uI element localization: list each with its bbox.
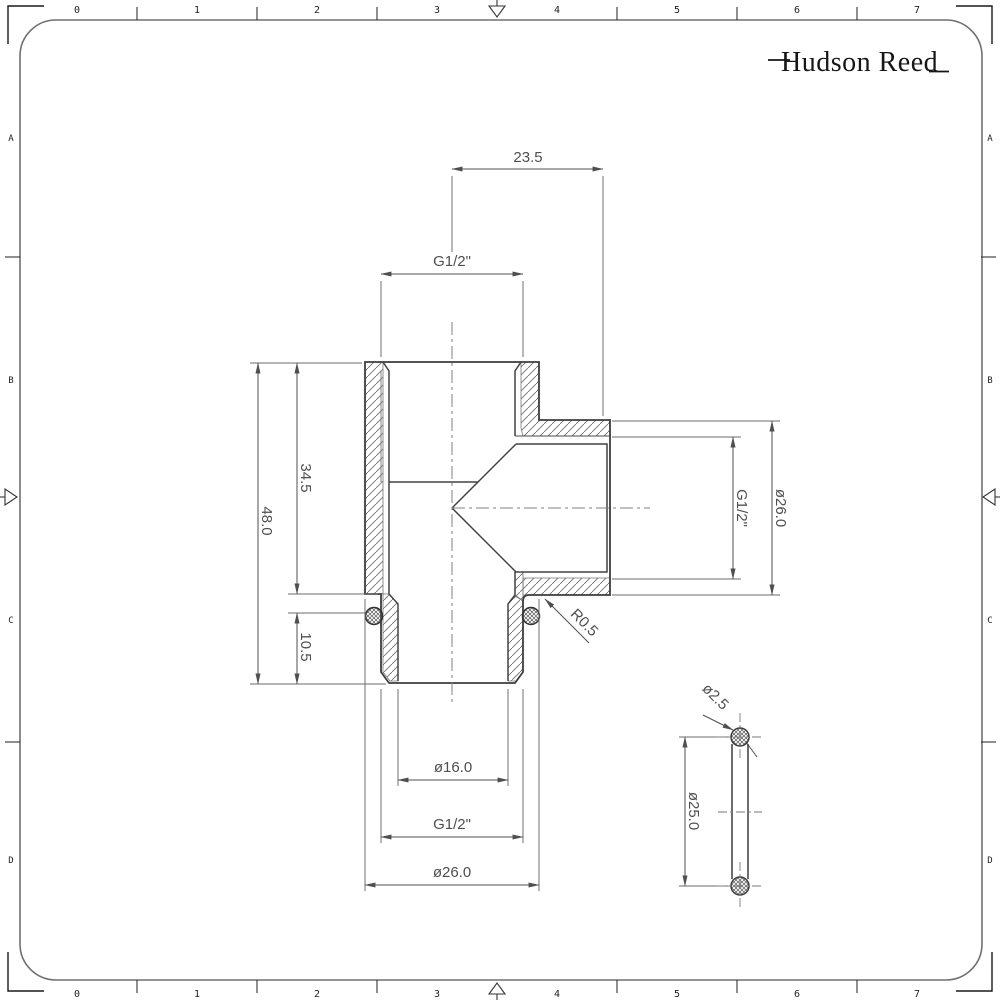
border-rounded-rect xyxy=(20,20,982,980)
center-marker-bottom-icon xyxy=(489,983,505,1000)
drawing-sheet: 0 1 2 3 4 5 6 7 0 1 2 3 4 5 6 7 xyxy=(0,0,1000,1000)
section-hatch-areas xyxy=(365,362,610,681)
row-letter: A xyxy=(8,134,14,144)
dim-branch-offset: 23.5 xyxy=(513,149,542,166)
row-letter: C xyxy=(8,616,13,626)
hatch-spigot-left-wall xyxy=(383,594,398,681)
hatch-right-upper-wall xyxy=(521,362,610,436)
extension-lines xyxy=(250,176,780,891)
dim-bore-diameter: ø16.0 xyxy=(434,759,472,776)
centerlines xyxy=(452,322,650,706)
dim-oring-cross-section: ø2.5 xyxy=(699,680,732,713)
ruler-number: 5 xyxy=(674,989,680,1000)
sheet-border xyxy=(8,6,992,991)
ruler-number: 4 xyxy=(554,989,560,1000)
dimension-lines xyxy=(258,169,772,886)
hatch-left-wall xyxy=(365,362,383,594)
dim-oring-offset: 10.5 xyxy=(297,632,314,661)
ruler-number: 3 xyxy=(434,5,440,16)
ruler-number: 1 xyxy=(194,5,200,16)
dim-thread-branch: G1/2" xyxy=(733,489,750,527)
ruler-number: 4 xyxy=(554,5,560,16)
hatch-spigot-right-wall xyxy=(508,596,523,681)
ruler-number: 0 xyxy=(74,5,80,16)
oring-left xyxy=(366,608,383,625)
ruler-number: 7 xyxy=(914,989,920,1000)
tee-fitting-section xyxy=(365,322,650,706)
ruler-number: 3 xyxy=(434,989,440,1000)
row-letter: B xyxy=(8,376,13,386)
dim-thread-bottom: G1/2" xyxy=(433,816,471,833)
dim-socket-depth: 34.5 xyxy=(297,463,314,492)
oring-detail-view xyxy=(716,713,764,910)
dim-body-height: 48.0 xyxy=(258,506,275,535)
cad-canvas: 0 1 2 3 4 5 6 7 0 1 2 3 4 5 6 7 xyxy=(0,0,1000,1000)
ruler-number: 1 xyxy=(194,989,200,1000)
oring-right xyxy=(523,608,540,625)
oring-cs-leader-line xyxy=(703,715,733,730)
row-letter: D xyxy=(987,856,992,866)
hatch-branch-bottom-wall xyxy=(523,578,610,595)
dim-fillet-radius: R0.5 xyxy=(567,606,601,640)
ruler-right: A B C D xyxy=(981,134,1000,866)
ruler-number: 7 xyxy=(914,5,920,16)
dim-body-od: ø26.0 xyxy=(433,864,471,881)
dim-thread-top: G1/2" xyxy=(433,253,471,270)
center-marker-right-icon xyxy=(983,489,1000,505)
dim-branch-od: ø26.0 xyxy=(772,489,789,527)
corner-mark-bottom-left xyxy=(8,952,44,991)
corner-mark-bottom-right xyxy=(956,952,992,991)
corner-mark-top-right xyxy=(956,6,992,44)
row-letter: C xyxy=(987,616,992,626)
dimensions: 23.5 G1/2" 34.5 48.0 10.5 G1/2" ø26.0 ø1… xyxy=(250,149,789,891)
brand-logo-text: Hudson Reed xyxy=(781,47,938,78)
row-letter: D xyxy=(8,856,13,866)
dim-oring-diameter: ø25.0 xyxy=(685,792,702,830)
ruler-number: 2 xyxy=(314,5,320,16)
row-letter: B xyxy=(987,376,992,386)
ruler-top: 0 1 2 3 4 5 6 7 xyxy=(74,0,920,20)
fitting-outer-profile xyxy=(365,362,610,683)
ruler-number: 5 xyxy=(674,5,680,16)
ruler-number: 6 xyxy=(794,5,800,16)
fitting-inner-edges xyxy=(383,362,607,681)
brand-logo: Hudson Reed xyxy=(768,47,949,78)
ruler-bottom: 0 1 2 3 4 5 6 7 xyxy=(74,980,920,1000)
ruler-left: A B C D xyxy=(0,134,20,866)
row-letter: A xyxy=(987,134,993,144)
ruler-number: 0 xyxy=(74,989,80,1000)
center-marker-left-icon xyxy=(0,489,17,505)
ruler-number: 2 xyxy=(314,989,320,1000)
center-marker-top-icon xyxy=(489,0,505,17)
ruler-number: 6 xyxy=(794,989,800,1000)
